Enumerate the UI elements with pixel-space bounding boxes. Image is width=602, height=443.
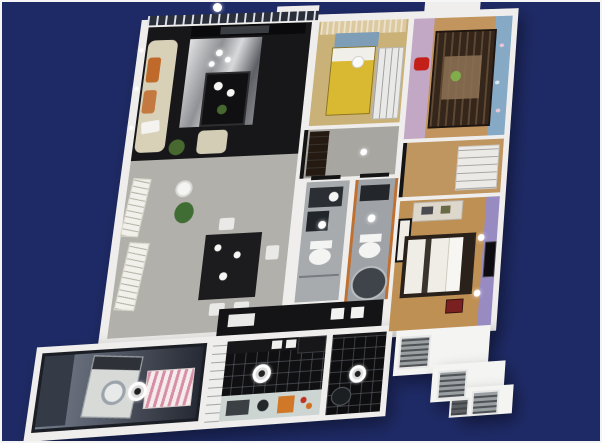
dressing-corridor [399, 139, 504, 198]
bath-appliance [306, 211, 330, 232]
closet-shelving [455, 144, 500, 190]
ac-unit [470, 389, 499, 416]
washer-door [99, 380, 128, 405]
dining-chair [218, 218, 234, 231]
toilet [308, 248, 331, 265]
utility-room [325, 332, 387, 416]
hob-knob [271, 340, 282, 349]
bed-pillows [445, 237, 464, 292]
balcony-shelf [35, 354, 75, 427]
hall-light [360, 149, 367, 156]
counter-tray [227, 313, 255, 327]
red-beanbag [414, 57, 430, 71]
cooking-pot [257, 399, 270, 411]
potted-plant [173, 202, 195, 224]
apartment-plan-tilt [21, 4, 537, 443]
apartment-plan [35, 0, 553, 443]
calligraphy-scroll [114, 242, 150, 311]
sofa-cushion [145, 57, 161, 82]
ac-unit-small [449, 398, 470, 418]
round-bathtub [349, 265, 389, 301]
hall-closet [305, 131, 329, 177]
kitchen [204, 335, 327, 423]
tableware [219, 272, 228, 281]
tableware [233, 251, 241, 258]
ac-unit [436, 369, 468, 400]
fish-decal-icon [495, 80, 500, 84]
table-plant [216, 104, 227, 114]
sink [328, 192, 339, 202]
sofa-throw [141, 120, 159, 135]
kids-bedroom [404, 16, 513, 140]
wash-basin [330, 386, 352, 406]
potted-plant [168, 139, 186, 155]
bath-light [367, 214, 376, 222]
laundry-balcony [31, 343, 207, 433]
dining-chair [265, 245, 280, 260]
tea-set [226, 89, 235, 97]
bunk-bed [427, 29, 497, 129]
ac-unit [397, 335, 431, 370]
tea-set [213, 82, 223, 91]
cutting-board [277, 395, 295, 413]
kitchen-sink [225, 400, 249, 416]
hallway [303, 126, 399, 179]
red-case [445, 298, 464, 313]
vanity-counter [308, 186, 343, 207]
coffee-table [199, 71, 251, 127]
vegetable [300, 397, 307, 404]
dresser-item [421, 206, 433, 214]
toilet [358, 242, 381, 259]
floor-lamp [174, 180, 193, 198]
sofa-cushion [141, 90, 157, 114]
bunk-mattress [441, 55, 482, 99]
living-room [131, 22, 312, 161]
floor-plan-render [0, 0, 602, 443]
single-bed [325, 46, 376, 116]
utility-light [348, 365, 367, 384]
vegetable [306, 403, 313, 410]
fish-decal-icon [499, 43, 504, 47]
kitchen-light [252, 364, 272, 384]
bath-shelf [360, 184, 391, 201]
roof-stub-right [424, 0, 481, 13]
master-bedroom [389, 196, 500, 331]
armchair [196, 130, 229, 155]
hob-knob [286, 339, 297, 348]
counter-sink [350, 307, 364, 319]
wardrobe [371, 47, 404, 120]
wall-poster [143, 368, 196, 409]
dresser-item [440, 205, 450, 213]
fridge [297, 335, 327, 353]
counter-sink [330, 308, 344, 320]
double-bed [399, 232, 476, 298]
shower-glass [299, 274, 339, 278]
small-bedroom [309, 19, 409, 126]
fish-decal-icon [496, 109, 501, 113]
dining-table [198, 232, 262, 300]
washer-control-panel [92, 356, 142, 370]
dresser [412, 200, 464, 222]
tableware [214, 244, 222, 251]
